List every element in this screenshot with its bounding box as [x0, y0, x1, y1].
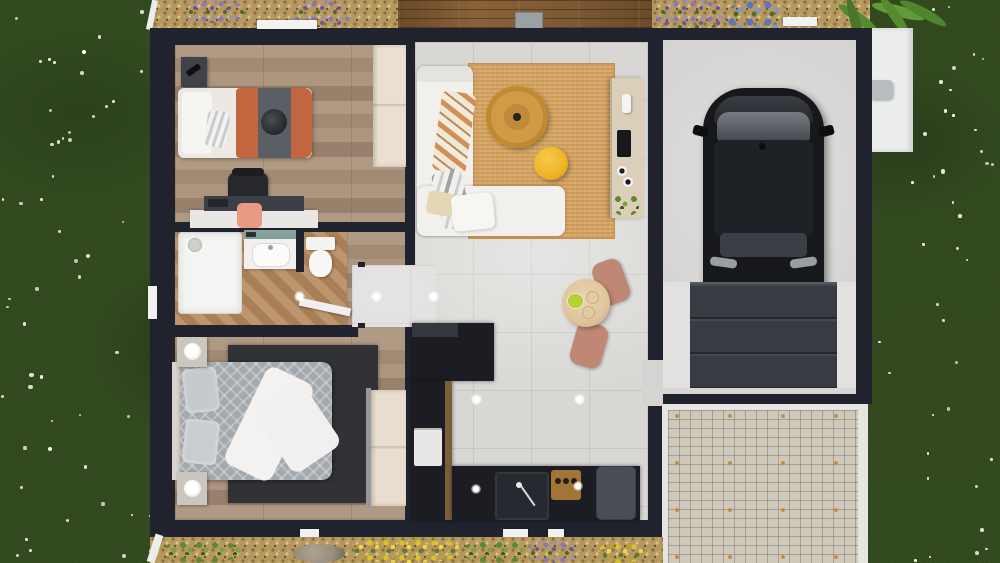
decor-roll	[623, 177, 633, 187]
lawn-flower	[985, 162, 988, 165]
lawn-flower	[58, 230, 61, 233]
lavender-plant	[183, 0, 245, 23]
lawn-flower	[62, 137, 65, 140]
lawn-flower	[101, 502, 104, 505]
lawn-flower	[947, 407, 950, 410]
green-shrub	[162, 540, 240, 563]
coral-chair	[237, 203, 262, 228]
garage-interior-door	[642, 360, 663, 406]
ceiling-light	[428, 291, 439, 302]
lawn-flower	[92, 115, 95, 118]
office-chair-back	[232, 168, 264, 176]
lawn-flower	[936, 303, 939, 306]
lawn-flower	[922, 243, 925, 246]
round-cushion	[261, 109, 287, 135]
lawn-flower	[975, 551, 979, 555]
floorplan-render	[0, 0, 1000, 563]
jar	[555, 478, 561, 484]
ceiling-light	[471, 394, 482, 405]
car-antenna	[759, 143, 766, 150]
lawn-flower	[23, 322, 27, 326]
sink	[495, 472, 549, 520]
lawn-flower	[29, 373, 33, 377]
counter-wood-edge	[445, 381, 452, 520]
window-sill-bottom-2	[503, 529, 528, 537]
lawn-flower	[98, 35, 101, 38]
entry-hall-tile	[352, 265, 436, 327]
driveway-border-right	[858, 410, 868, 563]
lawn-flower	[933, 175, 935, 177]
lawn-flower	[952, 66, 956, 70]
lawn-flower	[35, 287, 39, 291]
white-cushion	[450, 192, 496, 232]
jar	[563, 478, 569, 484]
round-lamp	[184, 343, 201, 360]
ceiling-light	[371, 291, 382, 302]
lawn-flower	[25, 538, 28, 541]
window-sill-bottom-3	[548, 529, 564, 537]
bed-pillow	[182, 418, 220, 465]
white-vase	[622, 94, 631, 113]
lawn-flower	[932, 414, 934, 416]
lawn-flower	[923, 132, 927, 136]
extractor-hood	[412, 323, 458, 337]
sofa-armrest	[417, 66, 473, 82]
lawn-flower	[958, 214, 961, 217]
garage-door-reveal-left	[663, 282, 690, 388]
garage-door-reveal-right	[837, 282, 856, 388]
faucet	[268, 245, 273, 250]
ceiling-light	[294, 291, 305, 302]
lawn-flower	[79, 414, 81, 416]
window-sill-left	[148, 286, 157, 319]
fridge	[596, 466, 636, 520]
lawn-flower	[80, 71, 84, 75]
lavender-plant	[655, 0, 727, 30]
shower-drain	[188, 238, 202, 252]
lawn-flower	[122, 221, 124, 223]
toilet-bowl	[309, 250, 332, 277]
garage-door	[690, 282, 837, 390]
lawn-flower	[952, 114, 954, 116]
tv	[617, 130, 631, 157]
window-sill-garage	[783, 17, 817, 26]
lawn-flower	[941, 169, 945, 173]
toilet-partition	[296, 232, 304, 272]
desk-accessory	[208, 199, 228, 207]
lawn-flower	[2, 198, 5, 201]
lawn-flower	[980, 528, 984, 532]
plate	[582, 306, 595, 319]
toilet-tank	[306, 237, 335, 250]
lawn-flower	[78, 275, 81, 278]
bed-pillow	[182, 366, 220, 413]
door-frame-tick	[358, 262, 365, 267]
yellow-pouf	[534, 147, 568, 180]
garage-threshold	[663, 388, 856, 394]
lawn-flower	[50, 143, 53, 146]
lawn-flower	[52, 175, 55, 178]
wardrobe	[371, 390, 406, 506]
lavender-plant	[525, 541, 581, 563]
lawn-flower	[16, 554, 19, 557]
lawn-flower	[19, 202, 23, 206]
lawn-flower	[127, 415, 130, 418]
counter-light	[471, 484, 481, 494]
doormat	[515, 12, 543, 29]
yellow-shrub	[598, 542, 646, 563]
lawn-flower	[66, 519, 69, 522]
car-roof	[714, 140, 813, 236]
round-lamp	[184, 480, 201, 497]
lawn-flower	[939, 80, 943, 84]
lawn-flower	[40, 198, 43, 201]
cobblestone-paving	[668, 410, 858, 563]
lawn-flower	[929, 556, 931, 558]
lawn-flower	[20, 486, 23, 489]
cosmetics	[246, 232, 256, 237]
lawn-flower	[944, 109, 947, 112]
car-rear-window	[720, 233, 807, 257]
bowl-of-limes	[567, 293, 584, 309]
lawn-flower	[23, 446, 26, 449]
lawn-flower	[74, 259, 78, 263]
rock	[293, 544, 345, 563]
bench-cushion	[869, 80, 893, 100]
decor-roll	[617, 166, 627, 176]
lawn-flower	[140, 10, 144, 14]
car-windshield	[717, 112, 810, 142]
green-shrub	[462, 540, 532, 563]
built-in-oven	[414, 428, 442, 466]
houseplant	[613, 194, 639, 216]
window-sill-top	[257, 20, 317, 29]
lawn-flower	[53, 61, 56, 64]
counter-light	[573, 481, 583, 491]
door-frame-tick	[358, 323, 365, 328]
lawn-flower	[942, 319, 945, 322]
lawn-flower	[48, 58, 50, 60]
ceiling-light	[574, 394, 585, 405]
lawn-flower	[68, 138, 72, 142]
table-center-knot	[513, 113, 521, 121]
lawn-flower	[956, 247, 958, 249]
wardrobe	[373, 45, 406, 167]
window-sill-bottom-1	[300, 529, 319, 537]
yellow-shrub	[350, 538, 462, 563]
lawn-flower	[974, 129, 977, 132]
lawn-flower	[115, 351, 118, 354]
plate	[586, 291, 599, 304]
